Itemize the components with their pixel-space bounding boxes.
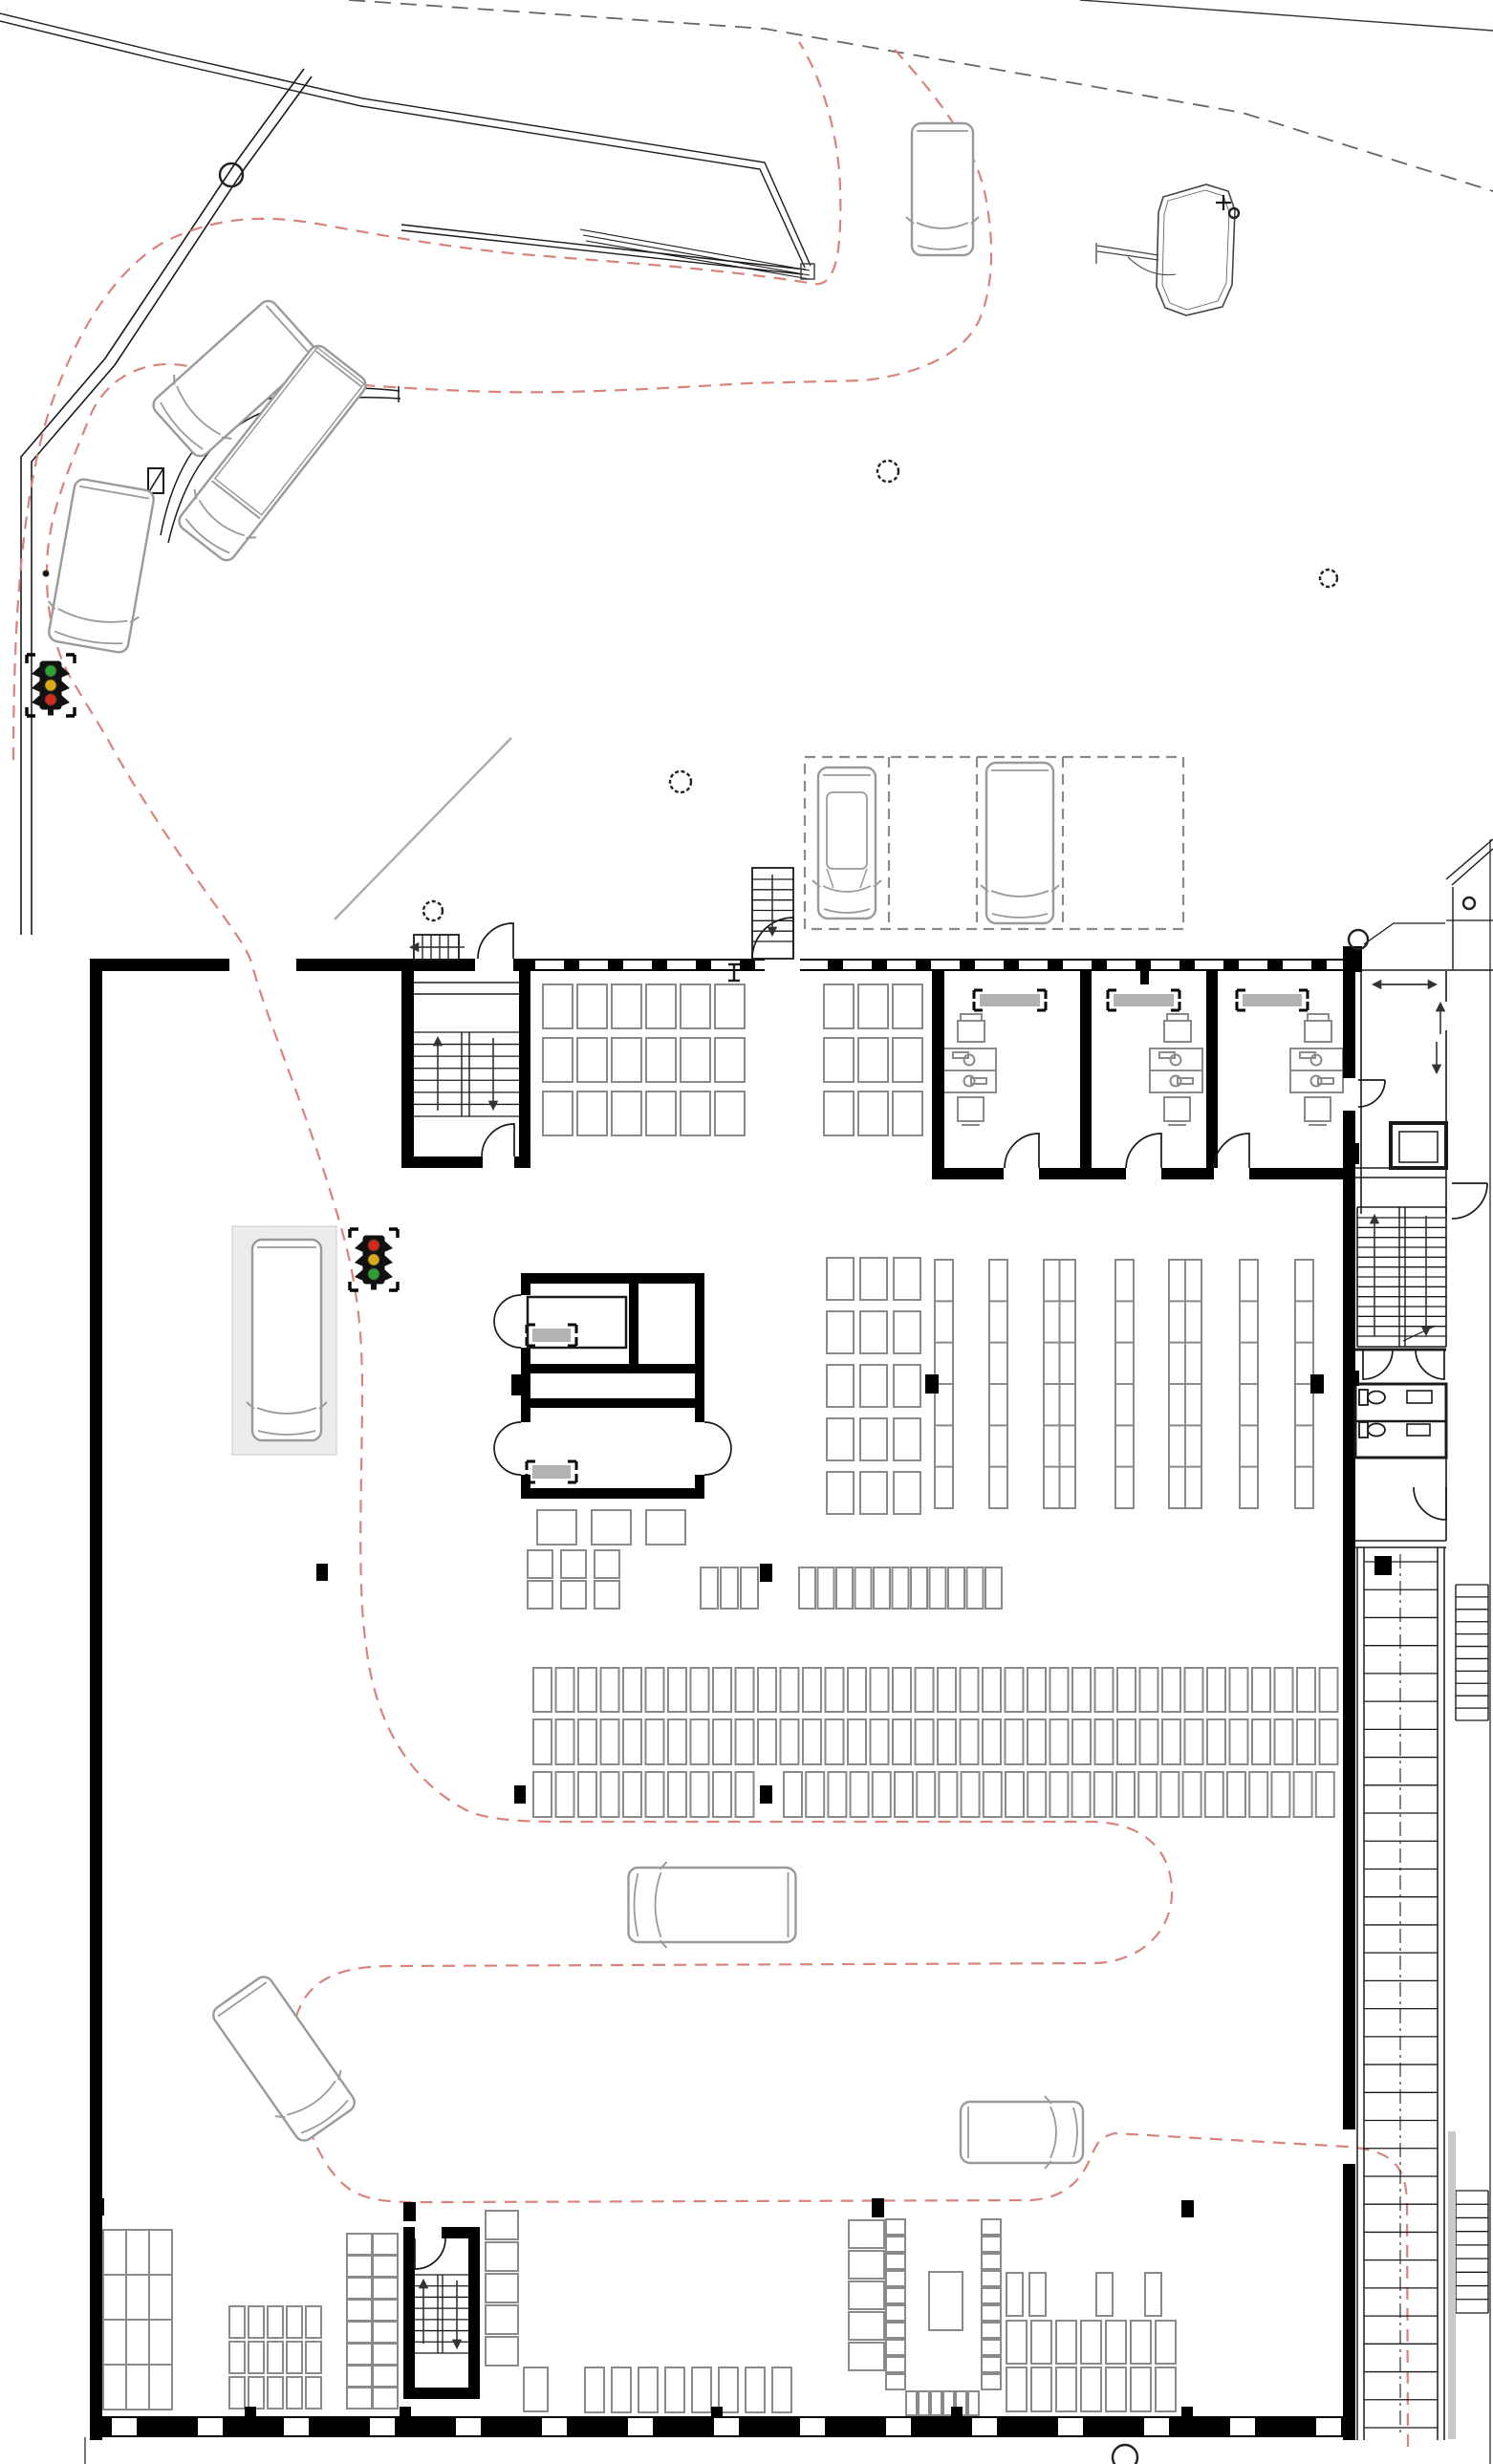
wall-segment <box>403 2227 415 2399</box>
storage-cell <box>713 1772 731 1817</box>
storage-cell <box>486 2305 518 2334</box>
column-block <box>245 2407 256 2417</box>
column-block <box>925 1374 939 1394</box>
storage-cell <box>1275 1719 1293 1764</box>
detail-rect <box>1407 1424 1430 1436</box>
storage-cell <box>931 2391 941 2415</box>
storage-cell <box>577 1092 607 1135</box>
storage-cell <box>1249 1772 1267 1817</box>
storage-cell <box>860 1258 887 1300</box>
storage-cell <box>982 2340 1001 2355</box>
storage-cell <box>1140 1719 1158 1764</box>
storage-cell <box>824 1038 854 1082</box>
storage-cell <box>848 1668 866 1712</box>
window-slit <box>799 961 828 969</box>
storage-cell <box>347 2300 372 2321</box>
storage-cell <box>803 1668 821 1712</box>
storage-cell <box>886 2288 905 2303</box>
storage-cell <box>849 2251 884 2279</box>
storage-cell <box>126 2365 149 2410</box>
door-swing <box>1416 1350 1444 1379</box>
traffic-light-fin <box>355 1255 363 1266</box>
road-line <box>1096 243 1158 264</box>
storage-cell <box>1156 2367 1176 2411</box>
storage-cell <box>287 2306 302 2338</box>
storage-cell <box>1096 2273 1113 2316</box>
storage-cell <box>556 1772 574 1817</box>
storage-cell <box>126 2320 149 2365</box>
storage-cell <box>1095 1668 1114 1712</box>
storage-cell <box>1320 1719 1338 1764</box>
storage-cell <box>612 1092 641 1135</box>
storage-cell <box>1271 1772 1289 1817</box>
column-block <box>1348 1371 1359 1386</box>
storage-cell <box>533 1719 552 1764</box>
dock-door-slit <box>198 2418 223 2435</box>
storage-cell <box>103 2365 126 2410</box>
storage-cell <box>1275 1668 1293 1712</box>
storage-cell <box>612 1038 641 1082</box>
storage-cell <box>347 2278 372 2299</box>
storage-cell <box>719 2367 738 2412</box>
storage-cell <box>1230 1668 1248 1712</box>
wc-fixtures <box>1359 1390 1385 1437</box>
column-block <box>1181 2200 1194 2217</box>
storage-cell <box>1145 2273 1161 2316</box>
storage-cell <box>906 2391 917 2415</box>
road-line <box>335 738 511 919</box>
storage-cell <box>968 2391 979 2415</box>
storage-cell <box>668 1668 686 1712</box>
storage-cell <box>894 1472 920 1514</box>
storage-cell <box>486 2337 518 2366</box>
storage-cell <box>983 1719 1001 1764</box>
storage-cell <box>543 1038 573 1082</box>
storage-cell <box>537 1510 576 1545</box>
vehicle-van <box>247 1240 327 1440</box>
column-block <box>760 1785 772 1804</box>
storage-cell <box>149 2365 172 2410</box>
storage-cell <box>543 984 573 1028</box>
storage-cell <box>149 2320 172 2365</box>
door-swing <box>1005 1134 1039 1168</box>
storage-cell <box>1056 2321 1076 2364</box>
door-swing <box>1363 1350 1393 1379</box>
thin-wall-line <box>1446 839 1493 879</box>
walls <box>90 959 1355 2440</box>
storage-cell <box>982 2219 1001 2235</box>
vehicle-van <box>629 1862 796 1948</box>
wall-segment <box>932 1168 1004 1179</box>
storage-cell <box>229 2342 245 2373</box>
office-cabinet <box>1164 1021 1191 1042</box>
storage-cell <box>886 2254 905 2269</box>
wall-segment <box>90 959 229 971</box>
storage-cell <box>824 1092 854 1135</box>
traffic-light-lamp <box>368 1254 379 1265</box>
cabinet-lid <box>961 1014 982 1021</box>
vehicle-van <box>981 763 1059 923</box>
wall-segment <box>401 971 414 1168</box>
storage-cell <box>1162 1668 1180 1712</box>
floor-plan-stage <box>0 0 1493 2464</box>
column-block <box>514 1785 526 1804</box>
storage-cell <box>595 1581 619 1609</box>
storage-cell <box>1183 1772 1201 1817</box>
storage-cell <box>851 1772 869 1817</box>
storage-cell <box>860 1311 887 1353</box>
storage-cell <box>556 1719 574 1764</box>
thin-wall-line <box>1403 1326 1436 1341</box>
storage-cell <box>373 2366 398 2387</box>
storage-cell <box>347 2366 372 2387</box>
equipment-bar <box>532 1329 571 1342</box>
door-swing <box>1126 1134 1161 1168</box>
storage-cell <box>982 2374 1001 2389</box>
storage-cell <box>577 1038 607 1082</box>
storage-cell <box>962 1772 980 1817</box>
dock-door-slit <box>1316 2418 1341 2435</box>
road-line <box>1080 0 1493 31</box>
storage-cell <box>1006 1772 1024 1817</box>
storage-cell <box>268 2306 283 2338</box>
storage-cell <box>886 2237 905 2252</box>
storage-cell <box>886 2323 905 2338</box>
traffic-lights <box>27 655 398 1290</box>
storage-cell <box>871 1668 889 1712</box>
storage-cell <box>373 2322 398 2343</box>
storage-cell <box>871 1719 889 1764</box>
wall-segment <box>932 971 944 1179</box>
traffic-light-fin <box>61 695 70 706</box>
storage-cell <box>858 1038 888 1082</box>
storage-cell <box>646 1772 664 1817</box>
storage-cell <box>1227 1772 1245 1817</box>
window-slit <box>623 961 652 969</box>
column-block <box>400 2407 411 2417</box>
door-swing <box>1414 1487 1446 1520</box>
dock-door-slit <box>542 2418 567 2435</box>
column-block <box>711 2407 723 2417</box>
storage-cell <box>681 1092 710 1135</box>
storage-cell <box>826 1719 844 1764</box>
storage-cell <box>939 1772 957 1817</box>
door-swing <box>1452 1183 1487 1219</box>
storage-cell <box>103 2320 126 2365</box>
storage-cell <box>886 2374 905 2389</box>
storage-cell <box>623 1772 641 1817</box>
wall-segment <box>442 2227 480 2238</box>
storage-cell <box>347 2322 372 2343</box>
vehicle-van <box>906 123 979 255</box>
storage-cell <box>1131 2367 1151 2411</box>
storage-cell <box>601 1668 619 1712</box>
storage-cell <box>715 1038 745 1082</box>
wall-equipment-bars <box>527 990 1308 1482</box>
storage-cell <box>961 1719 979 1764</box>
storage-cell <box>347 2234 372 2255</box>
storage-cell <box>1138 1772 1157 1817</box>
storage-cell <box>1106 2367 1126 2411</box>
storage-cell <box>715 1092 745 1135</box>
storage-cell <box>827 1258 854 1300</box>
storage-cell <box>982 2357 1001 2372</box>
direction-arrows <box>411 875 1440 2347</box>
storage-cell <box>893 984 922 1028</box>
storage-cell <box>781 1668 799 1712</box>
storage-cell <box>1297 1668 1315 1712</box>
detail-rect <box>1399 1132 1438 1162</box>
storage-cell <box>1095 1719 1114 1764</box>
wall-segment <box>1161 1168 1214 1179</box>
dock-door-slit <box>1144 2418 1169 2435</box>
road-line <box>586 241 810 279</box>
storage-cell <box>772 2367 791 2412</box>
traffic-light-fin <box>384 1269 393 1281</box>
storage-cell <box>713 1719 731 1764</box>
traffic-light-lamp <box>368 1268 379 1280</box>
storage-cell <box>249 2377 264 2409</box>
storage-cell <box>533 1668 552 1712</box>
storage-cell <box>886 2271 905 2286</box>
storage-cell <box>1056 2367 1076 2411</box>
storage-cell <box>1006 2367 1027 2411</box>
traffic-light-fin <box>355 1269 363 1281</box>
storage-cell <box>893 1038 922 1082</box>
door-swing <box>482 1124 514 1156</box>
column-block <box>1181 2407 1193 2417</box>
storage-cell <box>818 1567 834 1609</box>
storage-cell <box>347 2256 372 2277</box>
storage-cell <box>668 1772 686 1817</box>
storage-cell <box>781 1719 799 1764</box>
wall-segment <box>519 971 530 1162</box>
storage-cell <box>873 1772 891 1817</box>
side-table <box>1164 1097 1190 1121</box>
rack-rows <box>935 1260 1313 1508</box>
storage-cell <box>692 2367 711 2412</box>
road-line <box>580 229 810 270</box>
window-slit <box>1107 961 1136 969</box>
storage-cell <box>1207 1719 1225 1764</box>
column-block <box>1374 1556 1392 1575</box>
storage-cell <box>691 1668 709 1712</box>
storage-cell <box>306 2377 321 2409</box>
storage-cell <box>1156 2321 1176 2364</box>
storage-cell <box>595 1550 619 1578</box>
storage-cell <box>556 1668 574 1712</box>
storage-cell <box>961 1668 979 1712</box>
storage-cell <box>638 2367 658 2412</box>
storage-cell <box>1294 1772 1312 1817</box>
storage-cell <box>930 1567 946 1609</box>
storage-cell <box>1049 1772 1068 1817</box>
annex-lines <box>85 839 1493 2464</box>
storage-cell <box>623 1668 641 1712</box>
storage-cell <box>601 1772 619 1817</box>
door-swing <box>1358 1080 1385 1107</box>
storage-cell <box>849 2343 884 2370</box>
wall-segment <box>521 1398 704 1408</box>
storage-cell <box>1031 2367 1051 2411</box>
office-chair <box>964 1076 975 1087</box>
window-slit <box>843 961 872 969</box>
storage-cell <box>893 1668 911 1712</box>
storage-cell <box>668 1719 686 1764</box>
detail-rect <box>801 264 814 279</box>
storage-cell <box>860 1472 887 1514</box>
wall-segment <box>521 1488 704 1499</box>
traffic-light-lamp <box>45 665 56 677</box>
traffic-light-fin <box>32 695 40 706</box>
wall-segment <box>1343 2164 1355 2440</box>
storage-cell <box>826 1668 844 1712</box>
storage-cell <box>836 1567 853 1609</box>
storage-cell <box>982 2288 1001 2303</box>
column-circle <box>44 572 49 576</box>
window-slit <box>755 961 784 969</box>
storage-cell <box>486 2242 518 2271</box>
storage-cell <box>373 2278 398 2299</box>
storage-cell <box>486 2211 518 2239</box>
traffic-light-fin <box>32 666 40 678</box>
column-block <box>1140 971 1149 984</box>
storage-cell <box>1106 2321 1126 2364</box>
window-slit <box>535 961 564 969</box>
dock-door-slit <box>972 2418 997 2435</box>
window-slit <box>1151 961 1179 969</box>
storage-cell <box>1205 1772 1223 1817</box>
vehicle-body <box>209 1974 357 2145</box>
column-block <box>1343 1143 1359 1164</box>
columns <box>92 946 1392 2417</box>
office-cabinet <box>958 1021 985 1042</box>
side-table <box>958 1097 984 1121</box>
storage-cell <box>741 1567 758 1609</box>
equipment-bar <box>1114 994 1174 1006</box>
storage-cell <box>646 1719 664 1764</box>
wall-segment <box>629 1284 638 1370</box>
window-slit <box>579 961 608 969</box>
door-swing <box>494 1295 521 1348</box>
window-slit <box>1063 961 1092 969</box>
door-swing <box>494 1422 521 1475</box>
vehicle-body <box>961 2102 1083 2163</box>
door-swing <box>704 1422 731 1475</box>
traffic-light-post <box>48 710 54 716</box>
storage-cell <box>1028 1668 1046 1712</box>
toilet-tank <box>1359 1422 1368 1437</box>
storage-cell <box>578 1719 596 1764</box>
storage-cell <box>917 1772 935 1817</box>
vehicle-body <box>986 763 1053 923</box>
toilet-bowl <box>1368 1392 1385 1404</box>
storage-cell <box>758 1719 776 1764</box>
window-slit <box>1019 961 1048 969</box>
storage-cell <box>612 984 641 1028</box>
dock-door-slit <box>800 2418 825 2435</box>
wall-segment <box>1343 959 1355 1078</box>
dock-door-slit <box>628 2418 653 2435</box>
storage-cell <box>701 1567 718 1609</box>
storage-cell <box>229 2377 245 2409</box>
storage-cell <box>646 984 676 1028</box>
storage-cell <box>1081 2321 1101 2364</box>
storage-cell <box>1320 1668 1338 1712</box>
storage-cell <box>665 2367 684 2412</box>
storage-cell <box>827 1365 854 1407</box>
storage-cell <box>828 1772 846 1817</box>
storage-cell <box>982 2254 1001 2269</box>
storage-cell <box>1117 1668 1136 1712</box>
storage-cell <box>982 2323 1001 2338</box>
storage-cell <box>894 1365 920 1407</box>
traffic-light-lamp <box>45 694 56 705</box>
storage-cell <box>983 1668 1001 1712</box>
storage-cell <box>577 984 607 1028</box>
storage-cell <box>967 1567 984 1609</box>
storage-cell <box>1140 1668 1158 1712</box>
storage-cell <box>1028 1772 1046 1817</box>
wall-segment <box>1249 1168 1355 1179</box>
storage-cell <box>919 2391 929 2415</box>
storage-cell <box>287 2377 302 2409</box>
window-slit <box>887 961 916 969</box>
storage-cell <box>893 1719 911 1764</box>
office-chair <box>1311 1076 1322 1087</box>
side-table <box>1305 1097 1331 1121</box>
column-circle <box>1320 570 1337 587</box>
storage-cell <box>736 1668 754 1712</box>
storage-cell <box>849 2312 884 2340</box>
wall-segment <box>521 1348 530 1422</box>
storage-cell <box>1131 2321 1151 2364</box>
storage-cell <box>886 2357 905 2372</box>
dock-door-slit <box>284 2418 309 2435</box>
storage-cell <box>1230 1719 1248 1764</box>
storage-cell <box>126 2275 149 2320</box>
window-slit <box>1239 961 1267 969</box>
storage-cell <box>561 1581 586 1609</box>
storage-cell <box>306 2306 321 2338</box>
storage-cell <box>1117 1719 1136 1764</box>
storage-cell <box>306 2342 321 2373</box>
storage-cell <box>1160 1772 1179 1817</box>
storage-cell <box>715 984 745 1028</box>
road-line <box>148 468 163 493</box>
storage-cell <box>1252 1668 1270 1712</box>
wall-segment <box>296 959 475 971</box>
traffic-light-fin <box>355 1241 363 1252</box>
storage-cell <box>1297 1719 1315 1764</box>
wall-segment <box>521 1364 704 1373</box>
storage-cell <box>268 2342 283 2373</box>
storage-cell <box>895 1772 913 1817</box>
door-swing <box>478 923 513 959</box>
traffic-light-lamp <box>368 1240 379 1251</box>
storage-cell <box>736 1719 754 1764</box>
storage-cell <box>623 1719 641 1764</box>
storage-cell <box>1185 1719 1203 1764</box>
storage-cell <box>893 1567 909 1609</box>
storage-cell <box>858 984 888 1028</box>
vehicles <box>42 123 1083 2169</box>
dock-door-slit <box>714 2418 739 2435</box>
storage-cell <box>373 2256 398 2277</box>
storage-cell <box>1185 1668 1203 1712</box>
storage-cell <box>1028 1719 1046 1764</box>
storage-cell <box>736 1772 754 1817</box>
